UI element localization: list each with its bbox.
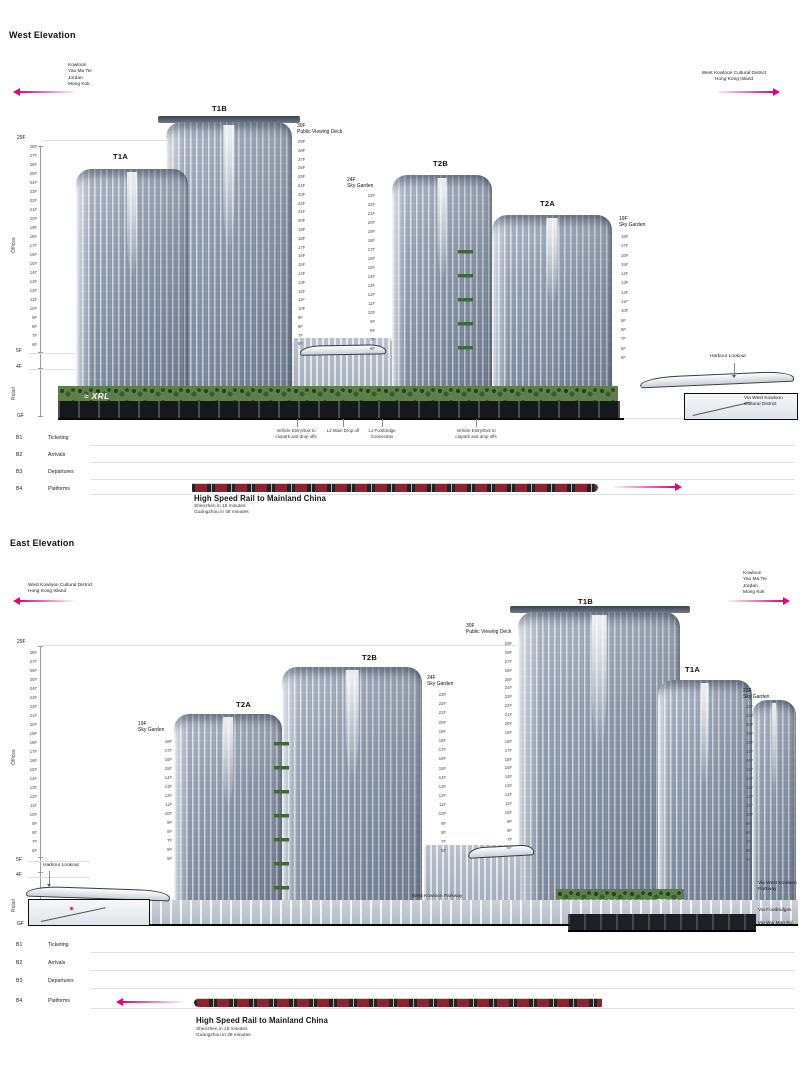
footbridge-note: L1 FootbridgeConnection: [361, 428, 403, 439]
direction-wkcd-labels: West Kowloon Cultural DistrictHong Kong …: [694, 71, 774, 84]
b4-label-west: Platforms: [48, 486, 70, 492]
axis-gf-label: GF: [17, 413, 24, 419]
sky24-floor-list-east: 23F22F21F20F19F18F17F16F15F14F13F12F11F1…: [412, 692, 446, 857]
tower-label-t1b-east: T1B: [578, 597, 593, 606]
axis-4f-label: 4F: [16, 364, 22, 370]
b1-line-east: [90, 952, 795, 953]
station-base-west: [58, 401, 620, 418]
harbour-lookout-label-east: Harbour Lookout: [43, 863, 79, 868]
sky-garden-19-label-west: 19FSky Garden: [619, 216, 645, 228]
harbour-lookout-canopy-west: [640, 371, 794, 389]
lookout-leader-arrow-east: [49, 871, 50, 884]
deck-floor-list-east: 29F28F27F26F25F24F23F22F21F20F19F18F17F1…: [478, 641, 512, 854]
hsr-train-west: [192, 483, 598, 492]
tower-t2b-east: [282, 667, 422, 925]
t2b-sky-terraces-west: [458, 250, 473, 368]
axis-5f-label-east: 5F: [16, 857, 22, 863]
harbour-lookout-structure-east: [28, 899, 150, 926]
main-dropoff-note: L2 Main Drop off: [322, 428, 364, 434]
axis-29f-label-east: 29F: [17, 639, 26, 645]
b3-label-east: Departures: [48, 978, 74, 984]
hsr-title-east: High Speed Rail to Mainland China: [196, 1016, 328, 1025]
b3-line-west: [90, 479, 795, 480]
b1-label-east: Ticketing: [48, 942, 69, 948]
b1-code-east: B1: [16, 942, 22, 948]
hsr-title-west: High Speed Rail to Mainland China: [194, 494, 326, 503]
direction-kowloon-labels: KowloonYau Ma TeiJordanMong Kok: [68, 63, 92, 88]
tower-label-t1a-east: T1A: [685, 665, 700, 674]
floor-axis-line: [40, 146, 41, 417]
harbour-lookout-label-west: Harbour Lookout: [710, 354, 746, 359]
b2-code-west: B2: [16, 452, 22, 458]
axis-5f-label: 5F: [16, 348, 22, 354]
hsr-train-east: [194, 998, 602, 1007]
west-elevation-panel: West Elevation KowloonYau Ma TeiJordanMo…: [0, 0, 800, 530]
b4-code-west: B4: [16, 486, 22, 492]
ground-line-east-a: [146, 924, 570, 926]
tower-label-t1a-west: T1A: [113, 152, 128, 161]
b3-line-east: [90, 988, 795, 989]
29f-datum-line-east: [42, 645, 516, 646]
lookout-logo-dot: [69, 906, 74, 911]
b2-line-west: [90, 462, 795, 463]
vehicle-entry-note-1: Vehicle Entry/Exit tocarpark and drop of…: [266, 428, 326, 439]
deck-floor-list-west: 29F28F27F26F25F24F23F22F21F20F19F18F17F1…: [298, 139, 305, 350]
b1-line-west: [90, 445, 795, 446]
b4-code-east: B4: [16, 998, 22, 1004]
east-elevation-title: East Elevation: [10, 538, 74, 548]
sky23-floor-list-east: 22F21F20F19F18F17F16F15F14F13F12F11F10F9…: [746, 704, 753, 866]
right-arrow-icon: [716, 88, 780, 96]
retail-axis-label: Retail: [11, 387, 17, 400]
sky-garden-23-label-east: 23FSky Garden: [743, 688, 769, 700]
axis-floor-list-east: 28F27F26F25F24F23F22F21F20F19F18F17F16F1…: [19, 650, 37, 857]
podium-garden-west: [58, 386, 618, 401]
sky-garden-24-label-west: 24FSky Garden: [347, 177, 373, 189]
via-wkcd-label: Via West KowloonCultural District: [744, 396, 783, 409]
b2-line-east: [90, 970, 795, 971]
via-wui-man-label: Via Wui Man Rd: [758, 921, 792, 926]
sky-garden-19-label-east: 19FSky Garden: [138, 721, 164, 733]
b1-code-west: B1: [16, 435, 22, 441]
podium-garden-east: [556, 889, 684, 899]
retail-axis-label-east: Retail: [11, 899, 17, 912]
floor-axis-line-east: [40, 646, 41, 924]
lookout-ramp-west: [693, 402, 750, 416]
tower-t1a-west: [76, 169, 188, 420]
axis-29f-label: 29F: [17, 135, 26, 141]
direction-kowloon-labels-east: KowloonYau Ma TeiJordanMong Kok: [743, 571, 767, 596]
tower-label-t2a-west: T2A: [540, 199, 555, 208]
via-parkway-label: Via West KowloonParkway: [758, 881, 797, 894]
lookout-leader-arrow-west: [734, 363, 735, 375]
viewing-deck-label-west: 30FPublic Viewing Deck: [297, 123, 342, 135]
left-arrow-icon: [13, 88, 75, 96]
b3-code-east: B3: [16, 978, 22, 984]
tower-t2a-east: [174, 714, 282, 925]
sky24-floor-list-west: 23F22F21F20F19F18F17F16F15F14F13F12F11F1…: [345, 193, 375, 355]
west-elevation-title: West Elevation: [9, 30, 76, 40]
sky-garden-24-label-east: 24FSky Garden: [427, 675, 453, 687]
hsr-subtitle-west: Shenzhen in 15 minutesGuangzhou in 48 mi…: [194, 504, 249, 517]
b4-line-east: [90, 1008, 795, 1009]
b3-code-west: B3: [16, 469, 22, 475]
viewing-deck-label-east: 30FPublic Viewing Deck: [466, 623, 511, 635]
axis-4f-label-east: 4F: [16, 872, 22, 878]
offices-axis-label: Offices: [11, 238, 17, 253]
direction-wkcd-labels-east: West Kowloon Cultural DistrictHong Kong …: [28, 583, 92, 596]
axis-floor-list: 28F27F26F25F24F23F22F21F20F19F18F17F16F1…: [19, 144, 37, 351]
b3-label-west: Departures: [48, 469, 74, 475]
west-kowloon-parkway-label: West Kowloon Parkway: [412, 894, 462, 899]
sky19-floor-list-west: 18F17F16F15F14F13F12F11F10F9F8F7F6F5F: [621, 234, 628, 364]
elevation-drawing-page: { "colors": {"accent": "#e5007d", "groun…: [0, 0, 800, 1067]
east-elevation-panel: East Elevation West Kowloon Cultural Dis…: [0, 530, 800, 1067]
tower-label-t1b-west: T1B: [212, 104, 227, 113]
tower-t2b-west: [392, 175, 492, 420]
lower-level-block-east: [568, 914, 756, 932]
tower-label-t2b-west: T2B: [433, 159, 448, 168]
tower-label-t2a-east: T2A: [236, 700, 251, 709]
right-arrow-icon-east: [728, 597, 790, 605]
left-arrow-icon-east: [13, 597, 73, 605]
xrl-logo: XRL: [84, 391, 110, 401]
train-direction-arrow-west: [614, 483, 682, 491]
b2-code-east: B2: [16, 960, 22, 966]
b4-label-east: Platforms: [48, 998, 70, 1004]
b2-label-east: Arrivals: [48, 960, 65, 966]
b2-label-west: Arrivals: [48, 452, 65, 458]
b1-label-west: Ticketing: [48, 435, 69, 441]
vehicle-entry-note-2: Vehicle Entry/Exit tocarpark and drop of…: [446, 428, 506, 439]
ground-line-west: [58, 418, 624, 420]
offices-axis-label-east: Offices: [11, 750, 17, 765]
hsr-subtitle-east: Shenzhen in 15 minutesGuangzhou in 48 mi…: [196, 1027, 251, 1040]
train-direction-arrow-east: [116, 998, 182, 1006]
axis-gf-label-east: GF: [17, 921, 24, 927]
tower-label-t2b-east: T2B: [362, 653, 377, 662]
tower-t1b-east: [518, 612, 680, 925]
t2b-sky-terraces-east: [274, 742, 289, 910]
via-footbridges-label: Via Footbridges: [758, 908, 792, 913]
sky19-floor-list-east: 18F17F16F15F14F13F12F11F10F9F8F7F6F5F: [138, 739, 172, 865]
